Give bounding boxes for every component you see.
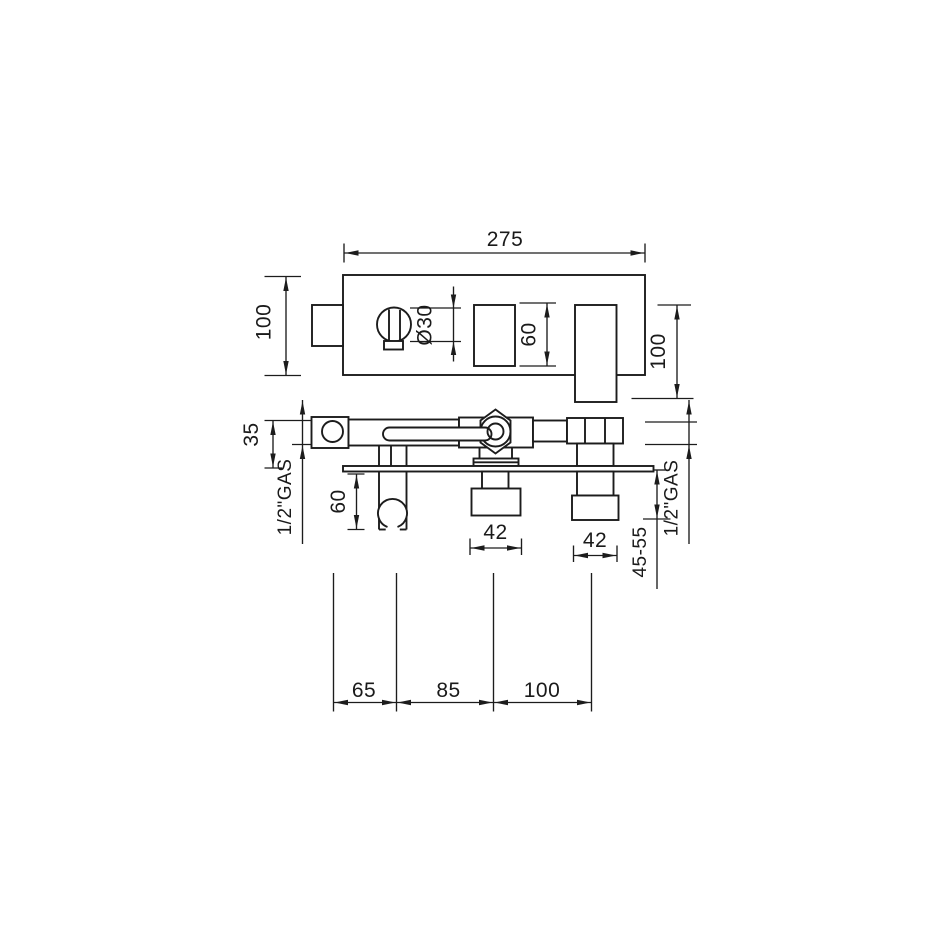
right-tail-lower	[577, 472, 614, 496]
dim-span-3-label: 100	[524, 679, 561, 702]
dim-right-outlet-width: 42	[574, 529, 618, 562]
dim-overall-width-label: 275	[487, 228, 524, 251]
dim-cutout-height-label: 60	[518, 322, 541, 346]
dim-overall-width: 275	[344, 228, 645, 263]
dim-span-2-label: 85	[436, 679, 460, 702]
dim-holder-depth: 60	[327, 474, 365, 530]
dim-center-outlet-label: 42	[483, 521, 507, 544]
body-connector	[533, 421, 567, 442]
knob-tab	[384, 341, 403, 350]
center-cutout	[474, 305, 515, 366]
knob-plan	[377, 308, 411, 342]
spout-plan	[575, 305, 617, 402]
dim-depth-left-label: 100	[253, 304, 276, 341]
front-view	[312, 410, 654, 530]
left-tab	[312, 305, 343, 346]
thread-callout-left: 1/2"GAS	[275, 400, 312, 544]
top-view	[312, 275, 645, 402]
hose-slot	[383, 428, 491, 441]
holder-cradle	[378, 499, 407, 527]
dim-holder-depth-label: 60	[327, 489, 350, 513]
dim-center-outlet-width: 42	[470, 521, 522, 555]
right-tail-nut	[572, 496, 619, 521]
left-cap-circle	[322, 421, 343, 442]
dim-span-1-label: 65	[352, 679, 376, 702]
body-right-block	[567, 418, 623, 444]
right-tail-upper	[577, 444, 614, 467]
dim-knob-diameter-label: Ø30	[414, 304, 437, 345]
technical-drawing-page: 275 100 Ø30 60 100	[0, 0, 950, 950]
center-outlet-neck	[482, 472, 509, 489]
thread-right-label: 1/2"GAS	[662, 460, 683, 537]
dim-depth-left: 100	[253, 277, 302, 376]
dim-right-outlet-label: 42	[583, 529, 607, 552]
dim-spout-length-label: 100	[647, 333, 670, 370]
spacing-dimensions: 65 85 100	[334, 573, 592, 712]
thread-left-label: 1/2"GAS	[275, 459, 296, 536]
center-outlet-block	[472, 489, 521, 516]
dim-tail-range-label: 45-55	[630, 526, 651, 577]
faucet-dimension-drawing: 275 100 Ø30 60 100	[0, 0, 950, 950]
dim-body-height-label: 35	[240, 422, 263, 446]
